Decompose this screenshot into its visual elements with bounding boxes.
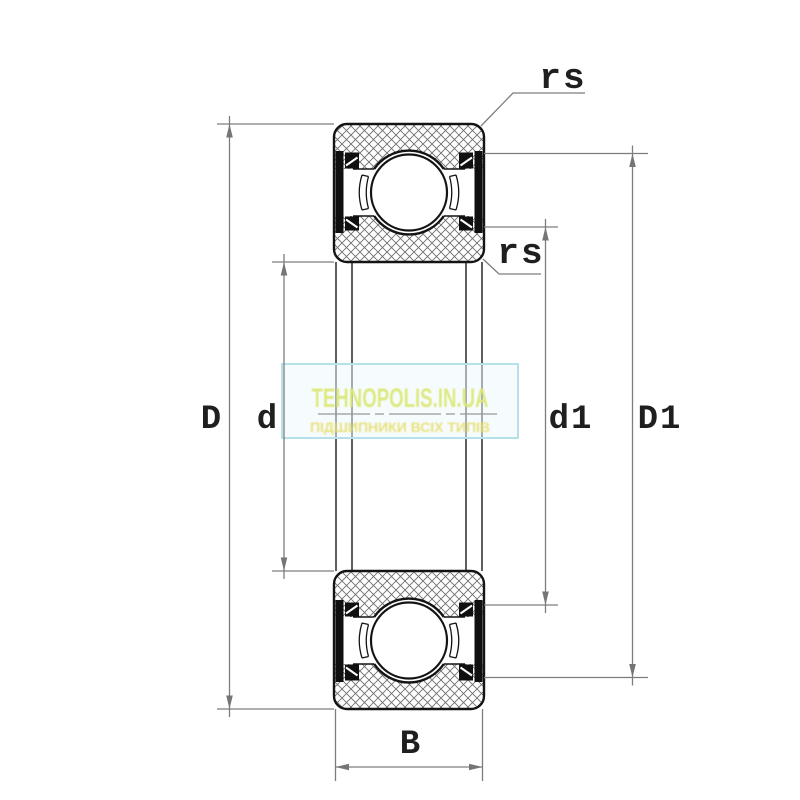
bearing-section-top (334, 124, 484, 262)
dimension-label-B: B (400, 726, 420, 764)
dimension-label-d: d (257, 401, 277, 439)
dimension-label-D1: D1 (638, 401, 683, 439)
watermark-tagline: ПІДШИПНИКИ ВСІХ ТИПІВ (310, 420, 490, 435)
drawing-canvas: TEHNOPOLIS.IN.UA ПІДШИПНИКИ ВСІХ ТИПІВ D… (0, 0, 800, 800)
arrow-right (469, 764, 483, 771)
watermark: TEHNOPOLIS.IN.UA ПІДШИПНИКИ ВСІХ ТИПІВ (282, 364, 518, 438)
arrow-up (281, 262, 288, 276)
arrow-up (226, 124, 233, 138)
arrow-down (226, 696, 233, 710)
dimension-B: B (336, 709, 483, 781)
arrow-down (281, 558, 288, 572)
callout-rs-mid: rs (483, 233, 545, 274)
rs-label-top: rs (539, 58, 586, 99)
arrow-down (629, 664, 636, 678)
dimension-label-D: D (201, 401, 221, 439)
arrow-left (336, 764, 350, 771)
bearing-drawing: TEHNOPOLIS.IN.UA ПІДШИПНИКИ ВСІХ ТИПІВ D… (0, 0, 800, 800)
arrow-up (629, 154, 636, 168)
arrow-down (542, 592, 549, 606)
callout-rs-top: rs (481, 58, 587, 126)
rs-label-mid: rs (497, 233, 544, 274)
bearing-section-bottom (334, 571, 484, 709)
dimension-label-d1: d1 (549, 401, 594, 439)
watermark-title: TEHNOPOLIS.IN.UA (312, 383, 489, 413)
